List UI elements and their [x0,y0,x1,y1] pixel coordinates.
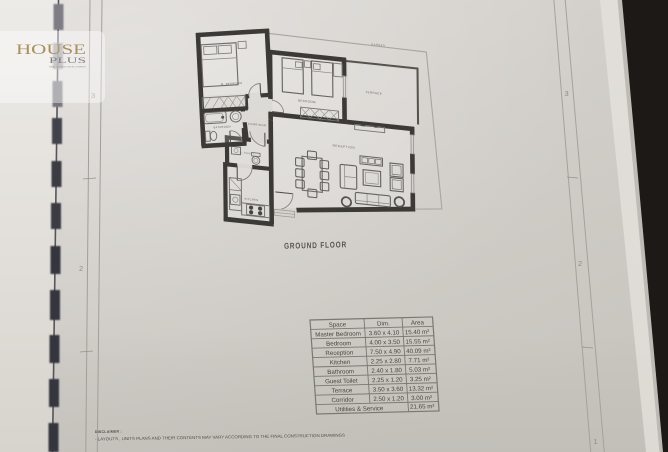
svg-text:2: 2 [79,264,83,273]
svg-text:21.65 m²: 21.65 m² [410,403,435,411]
svg-text:Corridor: Corridor [331,397,354,405]
svg-text:Kitchen: Kitchen [329,359,351,367]
svg-text:2.50 x 1.20: 2.50 x 1.20 [373,395,405,403]
svg-text:REAL ESTATE DEVELOPMENT: REAL ESTATE DEVELOPMENT [49,66,87,69]
svg-text:Terrace: Terrace [331,387,353,395]
svg-text:2: 2 [578,259,582,268]
svg-text:Guest Toilet: Guest Toilet [325,378,358,386]
svg-text:5.03 m²: 5.03 m² [409,366,430,374]
svg-text:7.71 m²: 7.71 m² [408,357,429,365]
svg-text:Master Bedroom: Master Bedroom [315,330,361,338]
svg-text:2.25 x 2.80: 2.25 x 2.80 [371,358,403,366]
svg-text:PLUS: PLUS [49,55,86,65]
svg-text:40.09 m²: 40.09 m² [406,348,431,356]
svg-text:3.00 m²: 3.00 m² [411,395,432,403]
svg-text:15.40 m²: 15.40 m² [405,329,430,337]
svg-text:Area: Area [411,319,425,326]
svg-text:4.00 x 3.50: 4.00 x 3.50 [369,339,401,347]
svg-text:Utilities & Service: Utilities & Service [335,405,384,413]
svg-text:3.60 x 4.10: 3.60 x 4.10 [369,329,401,337]
svg-text:15.55 m²: 15.55 m² [405,338,430,346]
svg-text:3.25 m²: 3.25 m² [410,376,431,384]
svg-text:13.32 m²: 13.32 m² [409,385,434,393]
svg-text:2.40 x 1.80: 2.40 x 1.80 [371,367,403,375]
svg-text:2.25 x 1.20: 2.25 x 1.20 [372,376,404,384]
svg-text:7.50 x 4.90: 7.50 x 4.90 [370,348,402,356]
svg-text:Reception: Reception [325,349,354,357]
svg-text:GROUND FLOOR: GROUND FLOOR [284,239,347,250]
svg-text:DISCLAIMER :: DISCLAIMER : [95,430,122,434]
svg-text:Dim.: Dim. [377,320,390,327]
svg-text:3.50 x 3.60: 3.50 x 3.60 [372,386,404,394]
svg-text:Bathroom: Bathroom [327,368,354,376]
svg-text:3: 3 [565,89,569,98]
svg-text:Bedroom: Bedroom [326,340,352,348]
svg-text:Space: Space [328,321,347,328]
svg-text:1: 1 [594,437,598,446]
